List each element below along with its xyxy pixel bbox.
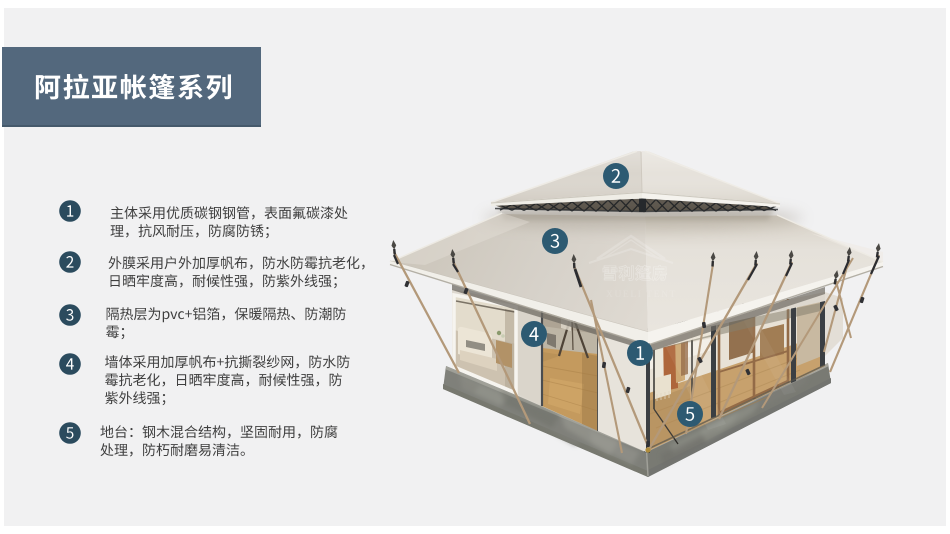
svg-text:XUELI TENT: XUELI TENT bbox=[606, 290, 677, 300]
